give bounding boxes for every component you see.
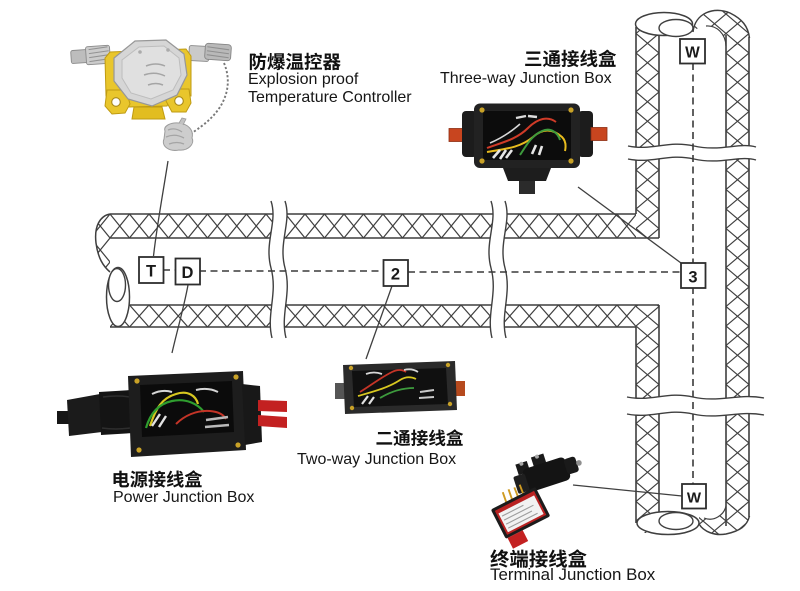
- svg-text:W: W: [685, 45, 700, 62]
- svg-text:Three-way Junction Box: Three-way Junction Box: [440, 70, 612, 87]
- svg-text:T: T: [146, 263, 156, 281]
- svg-text:Temperature Controller: Temperature Controller: [248, 89, 412, 106]
- svg-text:W: W: [687, 490, 702, 507]
- svg-text:Power Junction Box: Power Junction Box: [113, 489, 254, 506]
- svg-text:D: D: [182, 264, 194, 282]
- svg-text:Two-way Junction Box: Two-way Junction Box: [297, 451, 456, 468]
- svg-text:Terminal Junction Box: Terminal Junction Box: [490, 565, 656, 584]
- svg-text:Explosion proof: Explosion proof: [248, 71, 359, 88]
- svg-text:3: 3: [688, 269, 697, 287]
- svg-text:2: 2: [391, 266, 400, 284]
